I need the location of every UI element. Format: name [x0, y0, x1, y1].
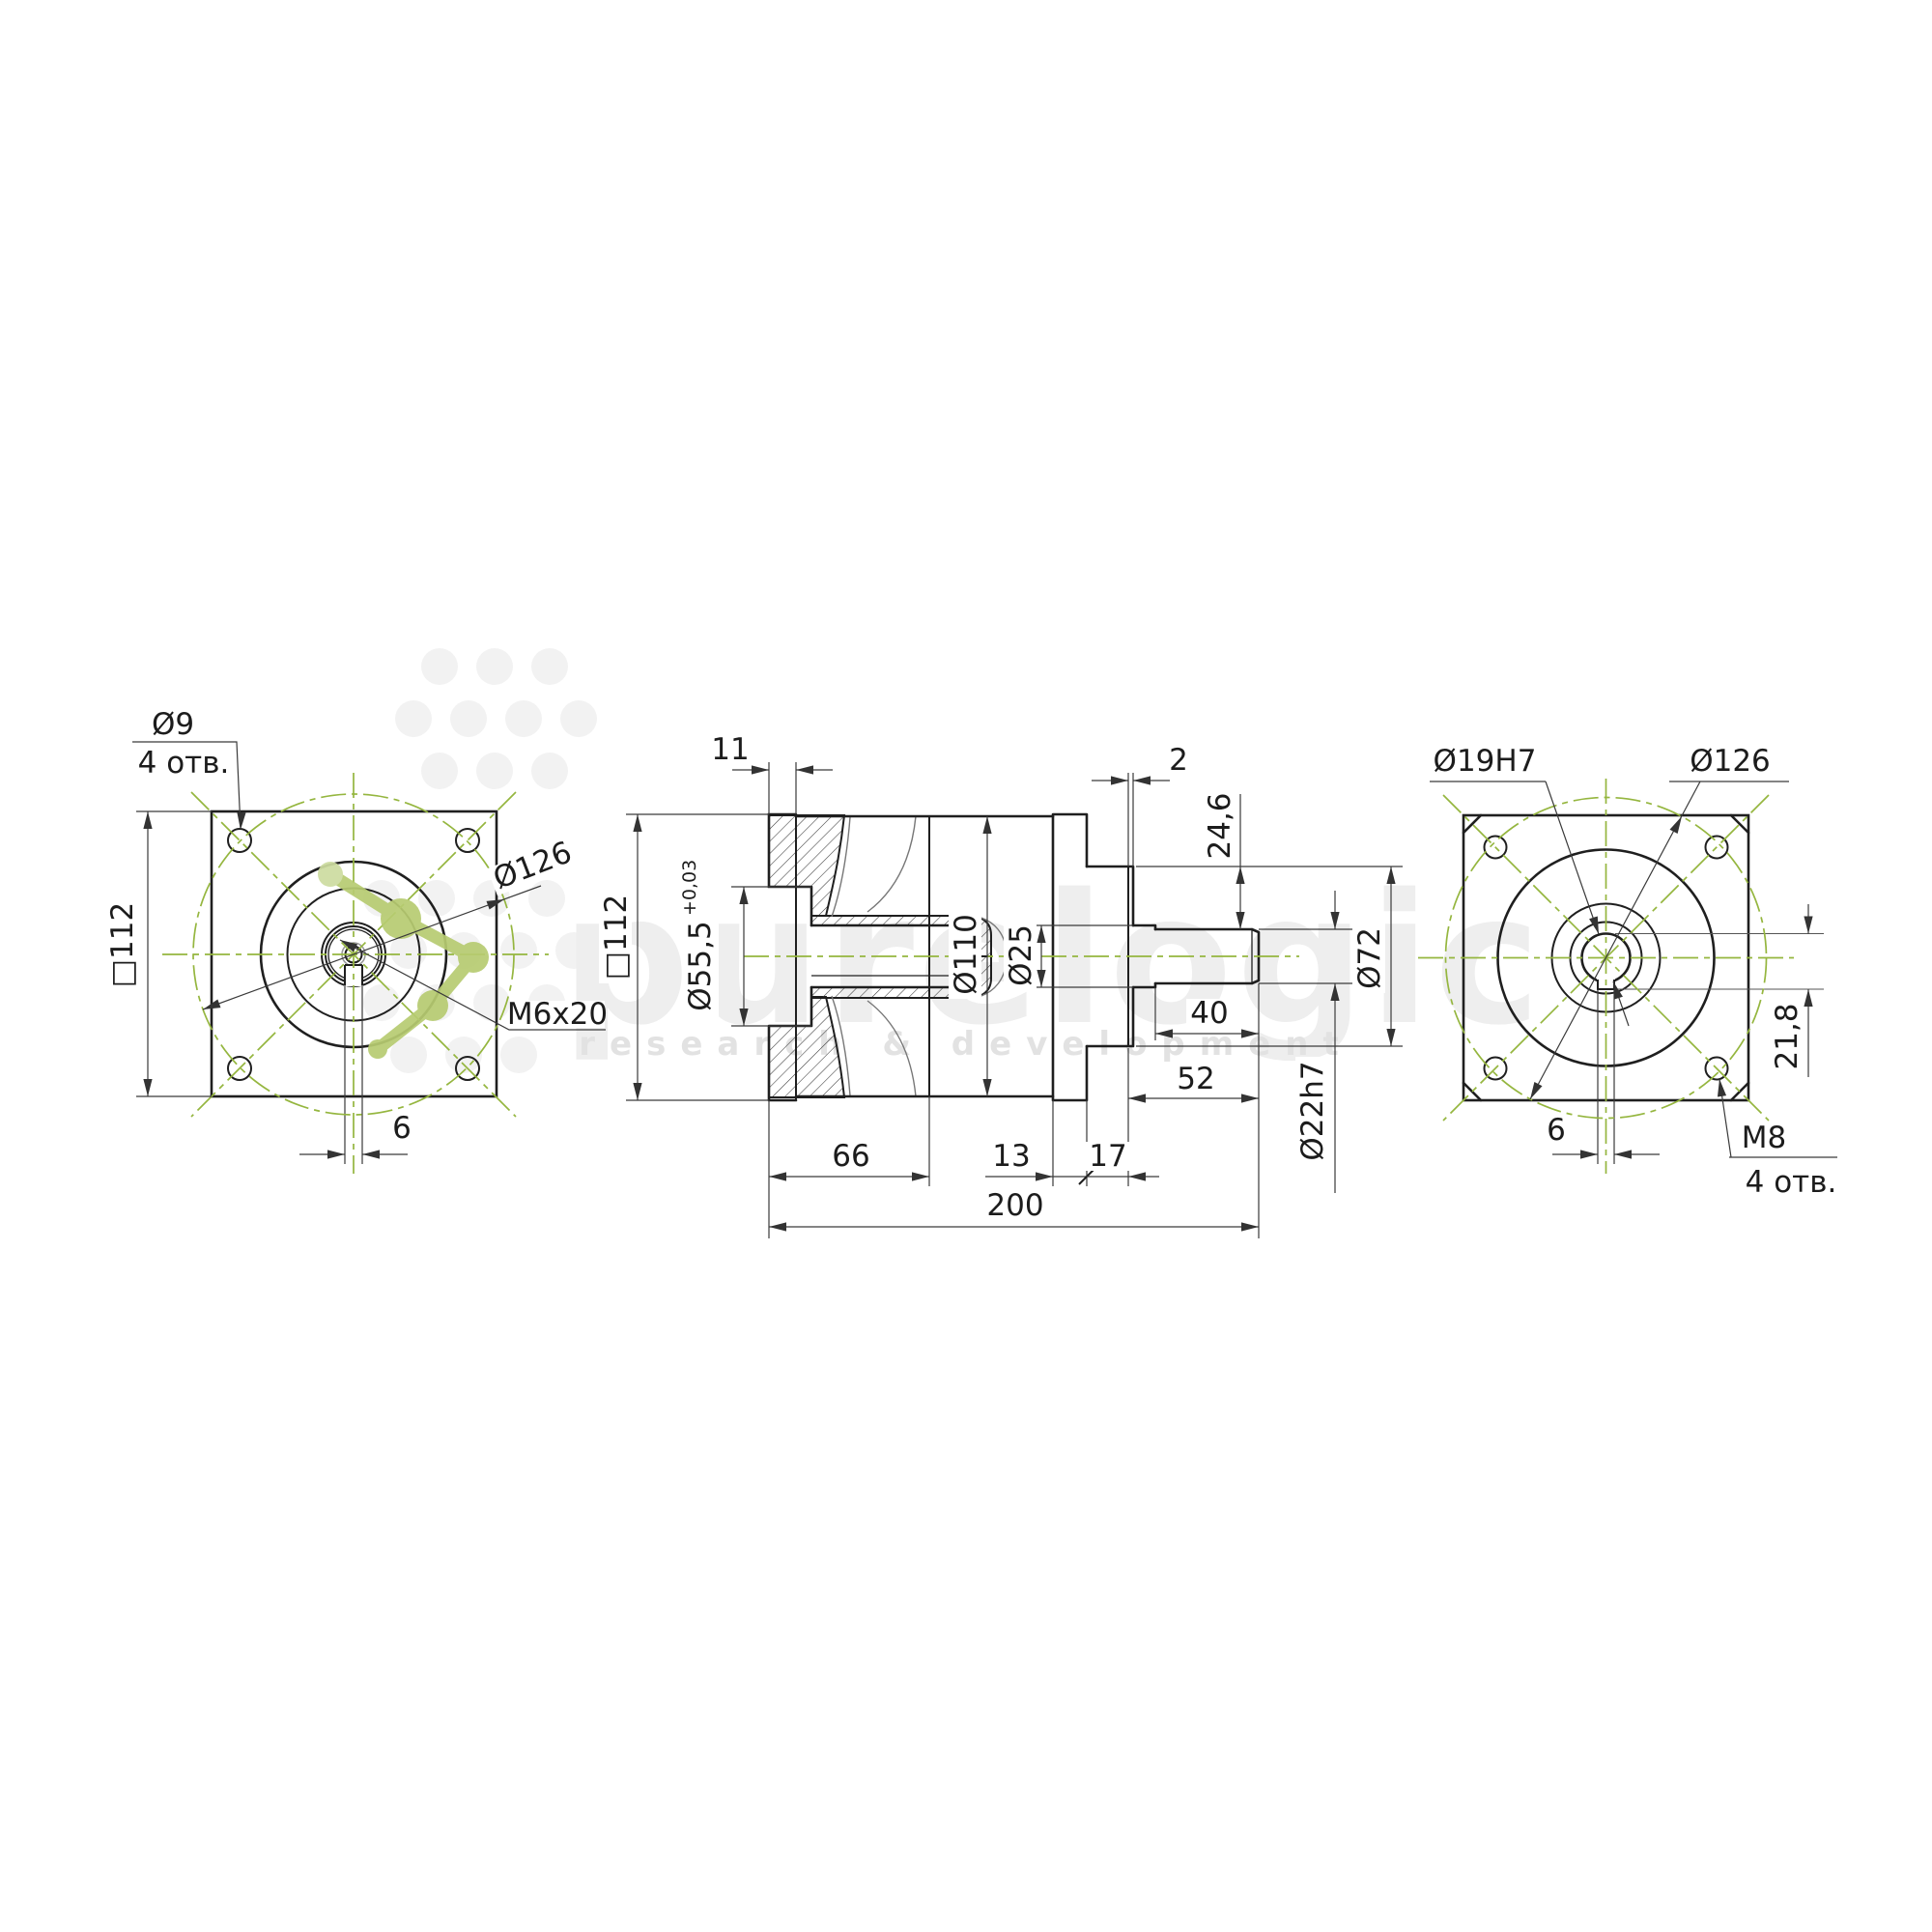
length-13-label: 13: [992, 1139, 1030, 1174]
rear-bolt-circle-label: Ø126: [1690, 744, 1771, 779]
front-hole-count-label: 4 отв.: [138, 746, 230, 781]
bore-dia-label: Ø25: [1004, 924, 1038, 986]
rear-keyway-depth-label: 21,8: [1770, 1003, 1804, 1069]
boss-dia-label: Ø72: [1352, 927, 1387, 989]
technical-drawing-page: purelogic research & development: [0, 0, 1932, 1932]
gap-2-label: 2: [1169, 743, 1188, 778]
dim-rear-key-width: 6: [1547, 1113, 1660, 1159]
watermark-tagline: research & development: [579, 1025, 1352, 1064]
shaft-total-label: 52: [1177, 1062, 1214, 1096]
rear-keydepth-ext: [1615, 934, 1824, 990]
dim-length-66: 66: [769, 1096, 929, 1238]
pilot-tol-label: +0,03: [679, 860, 700, 916]
rear-key-width-label: 6: [1547, 1113, 1566, 1148]
flange-thickness-label: 11: [711, 732, 749, 767]
dim-rear-keyway-depth: 21,8: [1770, 904, 1813, 1077]
front-thread-label: M6x20: [507, 997, 608, 1032]
shaft-length-label: 40: [1190, 996, 1228, 1031]
gearbox-drawing: purelogic research & development: [0, 0, 1932, 1932]
body-dia-label: Ø110: [949, 914, 983, 995]
key-height-label: 24,6: [1203, 792, 1237, 859]
dim-length-13: 13: [985, 1100, 1094, 1186]
dim-front-key-width: 6: [299, 1111, 412, 1159]
total-length-label: 200: [986, 1188, 1043, 1223]
front-square-label: □112: [105, 902, 140, 987]
rear-hole-count-label: 4 отв.: [1746, 1165, 1837, 1200]
length-17-label: 17: [1089, 1139, 1126, 1174]
rear-thread-label: M8: [1742, 1121, 1786, 1155]
dim-flange-thickness: 11: [711, 732, 833, 814]
front-hole-dia-label: Ø9: [152, 707, 194, 742]
rear-bore-label: Ø19H7: [1434, 744, 1537, 779]
dim-length-17: 17: [1086, 1048, 1159, 1186]
dim-gap-2: 2: [1092, 743, 1188, 867]
front-key-width-label: 6: [392, 1111, 412, 1146]
shaft-dia-label: Ø22h7: [1295, 1061, 1330, 1160]
pilot-dia-label: Ø55,5: [683, 921, 718, 1010]
length-66-label: 66: [832, 1139, 869, 1174]
dim-total-200: 200: [769, 1188, 1259, 1232]
section-square-label: □112: [599, 895, 634, 980]
